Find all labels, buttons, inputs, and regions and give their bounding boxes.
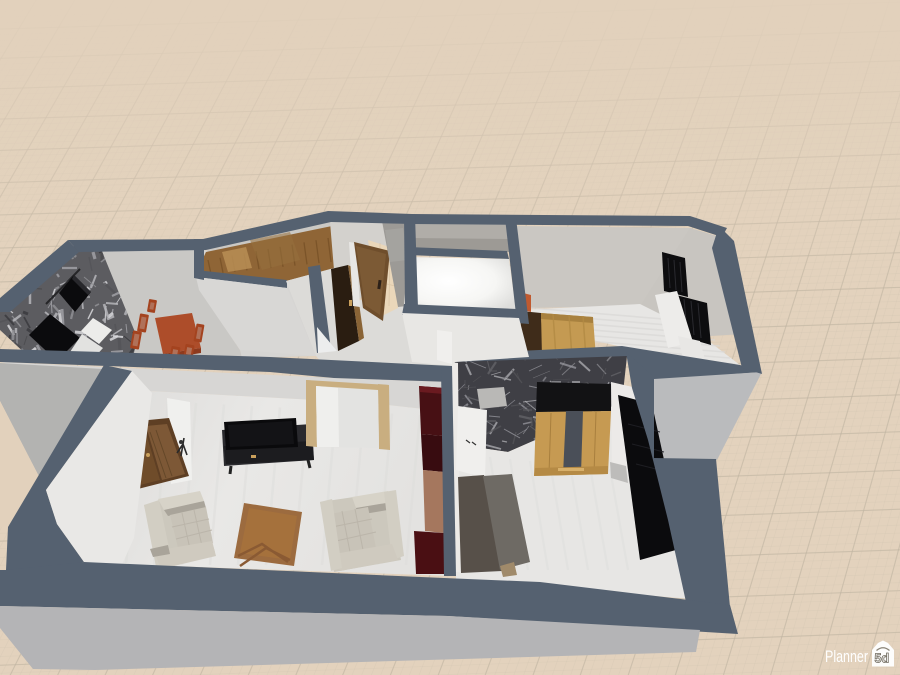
svg-text:5d: 5d: [875, 652, 890, 666]
svg-text:Planner: Planner: [825, 647, 868, 666]
